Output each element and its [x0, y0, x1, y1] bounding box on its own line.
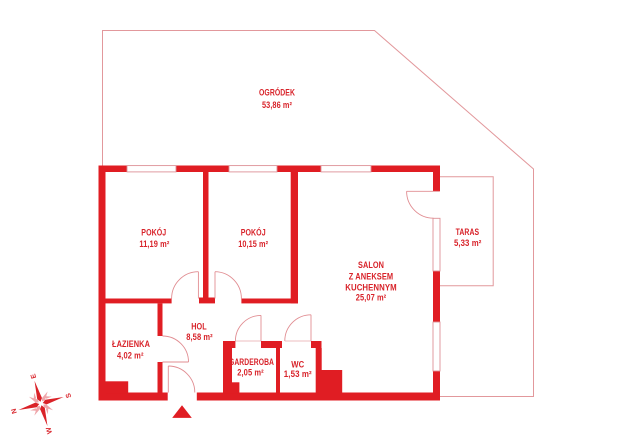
svg-text:10,15 m²: 10,15 m² [238, 239, 268, 249]
svg-text:OGRÓDEK: OGRÓDEK [259, 86, 295, 97]
svg-text:POKÓJ: POKÓJ [241, 226, 266, 237]
svg-text:GARDEROBA: GARDEROBA [229, 357, 274, 367]
svg-text:POKÓJ: POKÓJ [141, 226, 166, 237]
svg-text:2,05 m²: 2,05 m² [237, 368, 264, 378]
svg-text:11,19 m²: 11,19 m² [139, 239, 169, 249]
svg-text:8,58 m²: 8,58 m² [186, 332, 213, 342]
svg-text:4,02 m²: 4,02 m² [117, 351, 144, 361]
svg-text:25,07 m²: 25,07 m² [356, 293, 387, 303]
svg-text:1,53 m²: 1,53 m² [284, 369, 312, 379]
svg-text:5,33 m²: 5,33 m² [454, 238, 482, 248]
svg-text:53,86 m²: 53,86 m² [262, 100, 292, 110]
svg-text:ŁAZIENKA: ŁAZIENKA [112, 339, 150, 349]
svg-text:Z ANEKSEM: Z ANEKSEM [349, 271, 394, 281]
svg-text:WC: WC [291, 359, 304, 369]
svg-text:HOL: HOL [191, 322, 207, 332]
svg-text:TARAS: TARAS [456, 227, 480, 237]
svg-text:SALON: SALON [358, 260, 384, 270]
svg-text:KUCHENNYM: KUCHENNYM [345, 282, 397, 292]
